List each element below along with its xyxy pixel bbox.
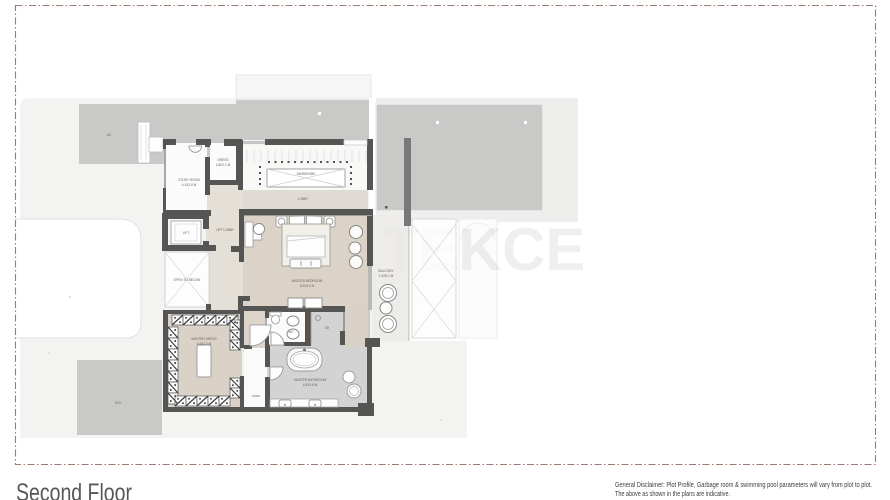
- svg-text:LINEN: LINEN: [252, 394, 260, 398]
- svg-text:MASTER DRESS: MASTER DRESS: [191, 337, 216, 341]
- svg-text:OPEN TO BELOW: OPEN TO BELOW: [174, 278, 201, 282]
- svg-text:3.4X4.3 M: 3.4X4.3 M: [197, 342, 212, 346]
- svg-text:LIFT LOBBY: LIFT LOBBY: [216, 228, 235, 232]
- svg-text:4.1X2.6 M: 4.1X2.6 M: [182, 183, 197, 187]
- svg-text:5.0X5.0 M: 5.0X5.0 M: [300, 284, 315, 288]
- svg-text:SH: SH: [325, 326, 330, 330]
- svg-text:WC: WC: [288, 330, 294, 334]
- svg-text:DRESS: DRESS: [218, 158, 229, 162]
- svg-text:4.9X3.6 M: 4.9X3.6 M: [303, 383, 318, 387]
- svg-text:KOI: KOI: [115, 401, 121, 405]
- svg-text:LIFT: LIFT: [183, 231, 190, 235]
- svg-text:STUDY ROOM: STUDY ROOM: [178, 178, 200, 182]
- svg-text:General Disclaimer: Plot Profi: General Disclaimer: Plot Profile, Garbag…: [615, 482, 872, 489]
- svg-text:TEKCE: TEKCE: [382, 216, 585, 283]
- svg-text:Second Floor: Second Floor: [16, 479, 132, 500]
- svg-text:AC: AC: [107, 133, 112, 137]
- svg-text:1.8X2.1 M: 1.8X2.1 M: [216, 163, 231, 167]
- svg-text:MASTER BATHROOM: MASTER BATHROOM: [294, 378, 327, 382]
- svg-text:WARDROBE: WARDROBE: [297, 172, 316, 176]
- svg-text:LOBBY: LOBBY: [298, 197, 310, 201]
- svg-text:MASTER BEDROOM: MASTER BEDROOM: [292, 279, 323, 283]
- svg-text:The above as shown in the plan: The above as shown in the plans are indi…: [615, 491, 730, 498]
